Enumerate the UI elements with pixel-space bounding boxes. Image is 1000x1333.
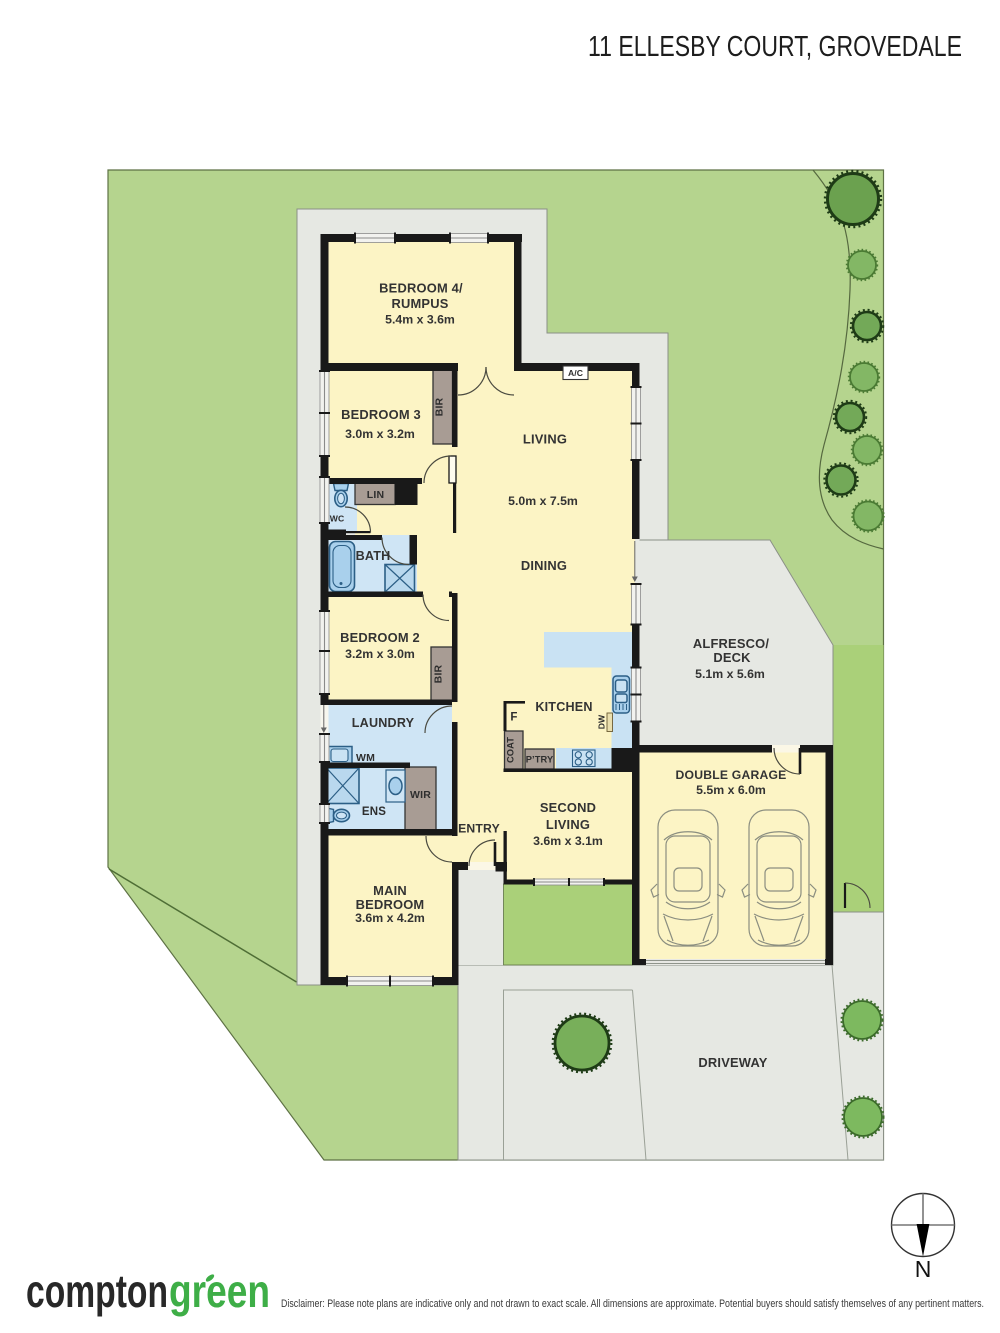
svg-text:green: green (169, 1265, 270, 1317)
svg-text:DW: DW (597, 714, 607, 729)
svg-text:3.6m x 4.2m: 3.6m x 4.2m (355, 911, 425, 925)
svg-text:3.2m x 3.0m: 3.2m x 3.0m (345, 647, 415, 661)
svg-text:LIN: LIN (367, 489, 385, 501)
svg-text:Disclaimer: Please note plans: Disclaimer: Please note plans are indica… (281, 1298, 984, 1310)
svg-text:3.6m x 3.1m: 3.6m x 3.1m (533, 834, 603, 848)
svg-text:11 ELLESBY COURT, GROVEDALE: 11 ELLESBY COURT, GROVEDALE (588, 31, 962, 63)
svg-text:KITCHEN: KITCHEN (535, 700, 592, 714)
svg-text:5.5m x 6.0m: 5.5m x 6.0m (696, 783, 766, 797)
svg-text:3.0m x 3.2m: 3.0m x 3.2m (345, 427, 415, 441)
svg-text:BEDROOM 4/: BEDROOM 4/ (379, 281, 463, 296)
svg-text:compton: compton (26, 1265, 168, 1317)
svg-text:5.0m x 7.5m: 5.0m x 7.5m (508, 494, 578, 508)
svg-text:WM: WM (356, 752, 375, 764)
svg-text:LIVING: LIVING (523, 432, 567, 447)
svg-text:BEDROOM 2: BEDROOM 2 (340, 630, 420, 645)
svg-text:SECOND: SECOND (540, 800, 596, 815)
svg-text:N: N (915, 1256, 932, 1282)
svg-text:LIVING: LIVING (546, 817, 590, 832)
svg-text:5.1m x 5.6m: 5.1m x 5.6m (695, 667, 765, 681)
svg-text:MAIN: MAIN (373, 883, 407, 898)
svg-text:BEDROOM 3: BEDROOM 3 (341, 407, 421, 422)
svg-text:LAUNDRY: LAUNDRY (352, 716, 415, 730)
svg-text:WIR: WIR (410, 789, 431, 801)
svg-text:BIR: BIR (433, 664, 445, 683)
svg-text:BIR: BIR (434, 397, 446, 416)
svg-text:ENTRY: ENTRY (458, 822, 500, 836)
svg-text:A/C: A/C (568, 368, 583, 378)
svg-text:BATH: BATH (356, 549, 391, 563)
svg-text:DRIVEWAY: DRIVEWAY (698, 1055, 767, 1070)
svg-text:DINING: DINING (521, 558, 567, 573)
svg-text:ALFRESCO/: ALFRESCO/ (693, 636, 769, 651)
svg-text:RUMPUS: RUMPUS (391, 296, 448, 311)
svg-text:WC: WC (330, 514, 345, 524)
svg-text:DECK: DECK (713, 650, 751, 665)
svg-text:P’TRY: P’TRY (526, 755, 554, 765)
svg-text:F: F (510, 712, 517, 724)
svg-text:ENS: ENS (362, 806, 386, 818)
svg-text:DOUBLE GARAGE: DOUBLE GARAGE (676, 768, 787, 782)
svg-text:COAT: COAT (506, 737, 516, 763)
svg-text:5.4m x 3.6m: 5.4m x 3.6m (385, 313, 455, 327)
svg-text:BEDROOM: BEDROOM (356, 897, 425, 912)
